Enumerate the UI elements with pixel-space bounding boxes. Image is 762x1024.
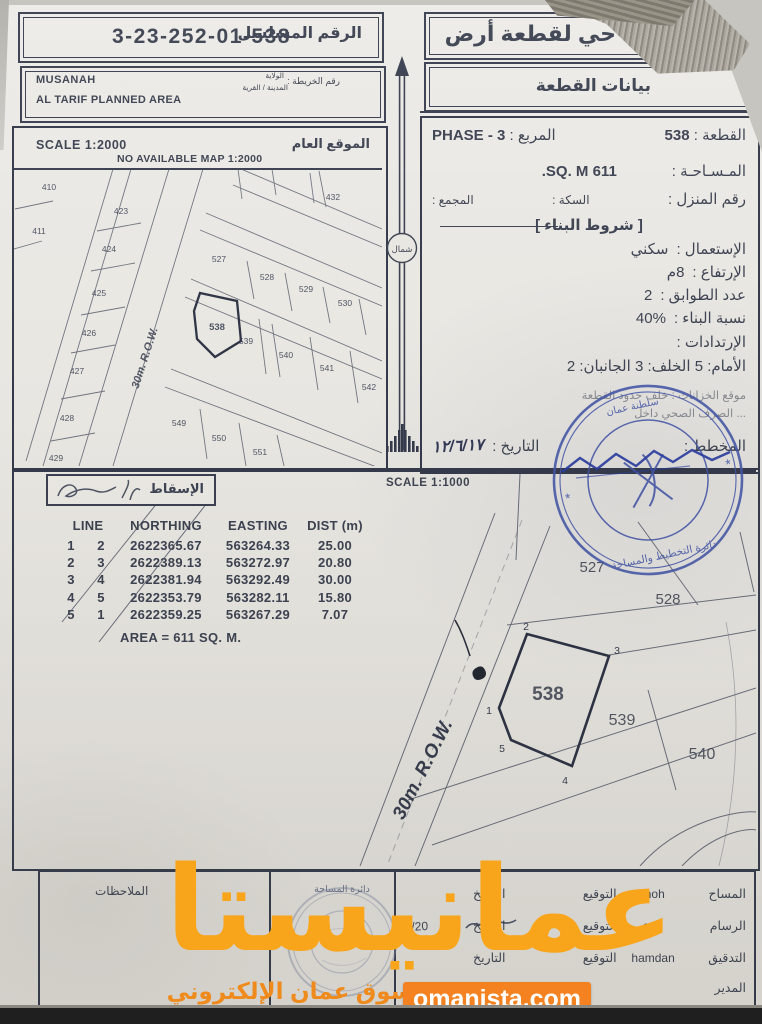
svg-text:549: 549 <box>172 418 186 428</box>
height-value: 8م <box>667 263 685 281</box>
height-label: الإرتفاع : <box>692 263 746 281</box>
floors-value: 2 <box>644 287 652 304</box>
use-value: سكني <box>631 240 669 258</box>
svg-text:*: * <box>564 490 573 507</box>
watermark-brand: عمانيستا <box>110 828 730 1003</box>
lower-map-scale: SCALE 1:1000 <box>386 477 470 489</box>
build-ratio-value: 40% <box>636 310 666 327</box>
upper-map-scale: SCALE 1:2000 <box>36 138 127 152</box>
svg-text:539: 539 <box>609 712 636 729</box>
upper-map-box: SCALE 1:2000 الموقع العام NO AVAILABLE M… <box>12 126 388 472</box>
svg-text:550: 550 <box>212 433 226 443</box>
svg-text:3: 3 <box>614 645 620 657</box>
svg-text:542: 542 <box>362 382 376 392</box>
svg-text:538: 538 <box>209 322 225 333</box>
scanned-land-plot-document: 3-23-252-01-538 الرقم المسلسل MUSANAH AL… <box>0 0 762 1024</box>
wilaya-label: الولاية <box>265 71 284 80</box>
upper-map-road-label: 30m. R.O.W. <box>130 326 161 390</box>
svg-text:528: 528 <box>260 272 274 282</box>
use-label: الإستعمال : <box>676 240 746 258</box>
svg-text:527: 527 <box>212 254 226 264</box>
svg-text:541: 541 <box>320 363 334 373</box>
svg-text:424: 424 <box>102 244 116 254</box>
area-label: المـسـاحـة : <box>672 162 746 180</box>
svg-text:5: 5 <box>499 743 505 755</box>
watermark-tagline: سوق عمان الإلكتروني <box>140 978 440 1005</box>
floors-label: عدد الطوابق : <box>660 286 746 304</box>
svg-text:428: 428 <box>60 413 74 423</box>
svg-text:2: 2 <box>523 621 529 633</box>
svg-text:539: 539 <box>239 336 253 346</box>
ink-blot <box>472 666 486 680</box>
document-title: حي لقطعة أرض <box>445 21 616 47</box>
svg-text:410: 410 <box>42 182 56 192</box>
planning-department-stamp: سلطنة عمان دائرة التخطيط والمساحة * * <box>540 372 758 590</box>
north-label: شمال <box>392 244 413 254</box>
street-label: السكة : <box>552 193 589 207</box>
handwritten-date: ١٢/٦/١٧ <box>432 435 485 458</box>
plot-data-subtitle: بيانات القطعة <box>536 76 651 96</box>
svg-text:1: 1 <box>486 705 492 717</box>
svg-text:411: 411 <box>32 226 46 236</box>
plot-number: 538 <box>665 127 690 144</box>
coords-table-header: LINE NORTHING EASTING DIST (m) <box>58 518 368 533</box>
region-box: MUSANAH AL TARIF PLANNED AREA رقم الخريط… <box>20 66 386 123</box>
serial-number-box: 3-23-252-01-538 الرقم المسلسل <box>18 12 384 63</box>
town-label: المدينة / القرية <box>242 83 288 92</box>
north-arrow: شمال <box>384 54 420 458</box>
upper-map-title: الموقع العام <box>292 136 370 152</box>
conditions-rule <box>440 226 558 227</box>
square-label: المربع : <box>510 127 556 144</box>
pen-mark <box>455 620 470 656</box>
svg-text:529: 529 <box>299 284 313 294</box>
svg-text:429: 429 <box>49 453 63 463</box>
wilaya-value: MUSANAH <box>36 74 96 86</box>
panel-top-rule <box>420 111 756 113</box>
svg-text:540: 540 <box>689 746 716 763</box>
projection-signature <box>52 478 162 502</box>
svg-text:423: 423 <box>114 206 128 216</box>
lower-map-road-label: 30m. R.O.W. <box>389 716 457 823</box>
svg-text:538: 538 <box>532 684 564 705</box>
building-conditions-title: [ شروط البناء ] <box>535 216 643 234</box>
build-ratio-label: نسبة البناء : <box>674 309 746 327</box>
svg-text:530: 530 <box>338 298 352 308</box>
date-label: التاريخ : <box>492 438 539 455</box>
svg-text:426: 426 <box>82 328 96 338</box>
svg-text:4: 4 <box>562 775 568 787</box>
area-value: 611 SQ. M. <box>542 163 617 180</box>
svg-text:427: 427 <box>70 366 84 376</box>
svg-text:551: 551 <box>253 447 267 457</box>
svg-text:432: 432 <box>326 192 340 202</box>
square-value: PHASE - 3 <box>432 127 505 144</box>
svg-text:540: 540 <box>279 350 293 360</box>
svg-text:*: * <box>724 455 733 472</box>
setbacks-label: الإرتدادات : <box>677 333 747 351</box>
planned-area-value: AL TARIF PLANNED AREA <box>36 94 181 106</box>
map-number-label: رقم الخريطة : <box>287 76 340 87</box>
svg-text:528: 528 <box>655 591 680 608</box>
house-number-label: رقم المنزل : <box>668 190 746 208</box>
complex-label: المجمع : <box>432 193 474 207</box>
serial-number-label: الرقم المسلسل <box>237 23 362 43</box>
survey-monument-icon <box>386 424 419 452</box>
bottom-background-strip <box>0 1008 762 1024</box>
svg-text:دائرة التخطيط والمساحة: دائرة التخطيط والمساحة <box>610 538 718 572</box>
plot-label: القطعة : <box>694 127 746 144</box>
no-available-map-note: NO AVAILABLE MAP 1:2000 <box>117 153 262 165</box>
projection-label: الإسقاط <box>149 481 204 497</box>
upper-map-drawing: 410 411 423 424 425 426 427 428 429 432 … <box>14 169 382 466</box>
projection-box: الإسقاط <box>46 474 216 506</box>
svg-text:425: 425 <box>92 288 106 298</box>
